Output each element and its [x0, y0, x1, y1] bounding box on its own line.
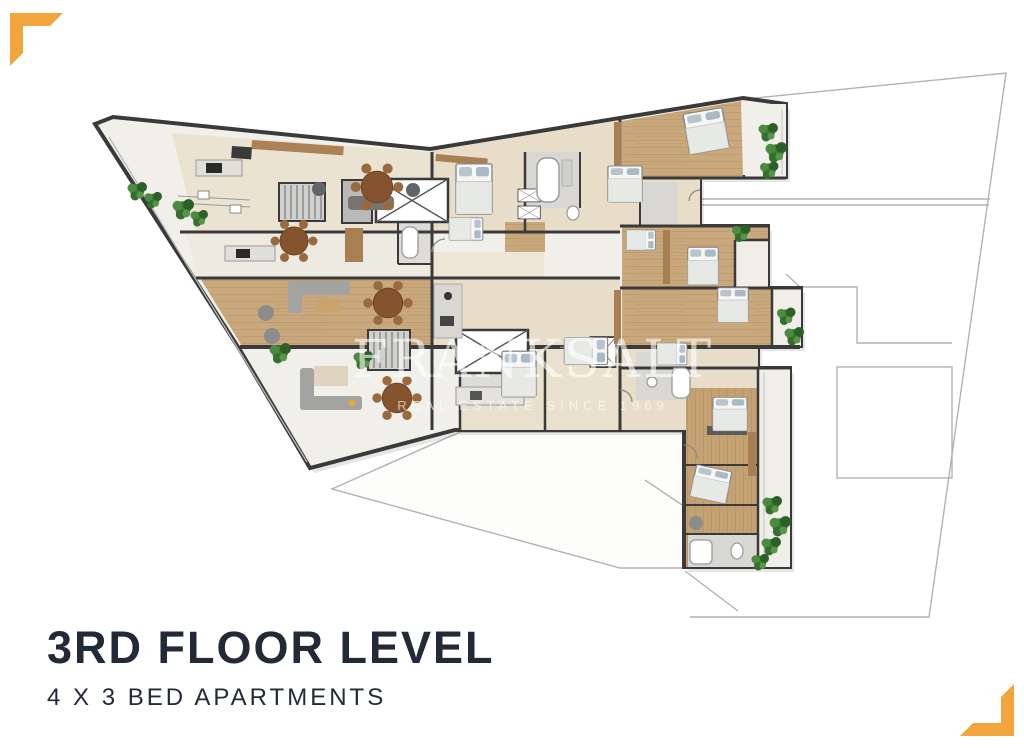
flyer-page: FRANKSALT REAL ESTATE SINCE 1969 3RD FLO… — [0, 0, 1024, 748]
title-block: 3RD FLOOR LEVEL 4 X 3 BED APARTMENTS — [47, 622, 495, 712]
page-title: 3RD FLOOR LEVEL — [47, 622, 495, 674]
page-subtitle: 4 X 3 BED APARTMENTS — [47, 684, 495, 712]
